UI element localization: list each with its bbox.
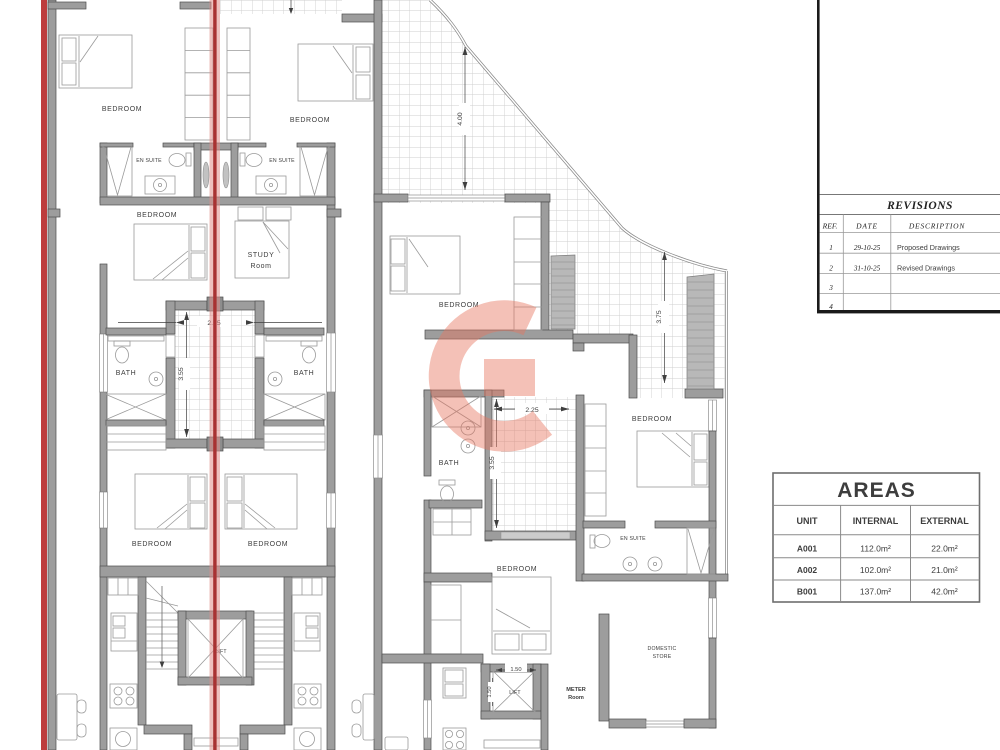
svg-text:42.0m²: 42.0m² [931,587,958,597]
svg-text:A001: A001 [797,544,818,554]
svg-text:BATH: BATH [116,370,137,377]
svg-text:Room: Room [250,263,271,270]
svg-text:BATH: BATH [439,460,460,467]
svg-text:DATE: DATE [855,222,878,231]
svg-text:137.0m²: 137.0m² [860,587,891,597]
svg-text:UNIT: UNIT [797,516,818,526]
svg-text:BEDROOM: BEDROOM [102,106,142,113]
svg-text:DESCRIPTION: DESCRIPTION [908,222,965,231]
svg-text:1.50: 1.50 [487,686,493,697]
svg-text:BEDROOM: BEDROOM [497,566,537,573]
svg-text:BEDROOM: BEDROOM [132,541,172,548]
svg-text:BEDROOM: BEDROOM [137,212,177,219]
svg-text:REF.: REF. [822,222,838,231]
svg-text:BEDROOM: BEDROOM [248,541,288,548]
svg-text:21.0m²: 21.0m² [931,565,958,575]
svg-text:B001: B001 [797,587,818,597]
svg-text:INTERNAL: INTERNAL [853,516,899,526]
svg-text:1: 1 [829,244,833,252]
svg-text:22.0m²: 22.0m² [931,544,958,554]
svg-text:EN SUITE: EN SUITE [136,158,162,164]
svg-text:STUDY: STUDY [248,252,275,259]
svg-text:102.0m²: 102.0m² [860,565,891,575]
svg-text:EN SUITE: EN SUITE [269,158,295,164]
svg-text:EN SUITE: EN SUITE [620,536,646,542]
svg-text:A002: A002 [797,565,818,575]
svg-text:3.75: 3.75 [656,310,663,323]
svg-text:METER: METER [566,687,586,693]
svg-text:REVISIONS: REVISIONS [886,200,953,212]
svg-text:4.00: 4.00 [457,112,464,125]
svg-text:2: 2 [829,265,833,273]
svg-text:BEDROOM: BEDROOM [290,117,330,124]
svg-text:AREAS: AREAS [837,479,916,502]
svg-text:31-10-25: 31-10-25 [853,265,881,273]
svg-text:112.0m²: 112.0m² [860,544,891,554]
svg-text:BEDROOM: BEDROOM [632,416,672,423]
svg-text:Proposed Drawings: Proposed Drawings [897,243,960,252]
svg-text:4: 4 [829,303,833,311]
svg-text:Revised Drawings: Revised Drawings [897,264,955,273]
svg-text:DOMESTIC: DOMESTIC [648,646,677,652]
svg-text:1.50: 1.50 [510,667,521,673]
svg-text:3.55: 3.55 [178,367,185,380]
svg-text:LIFT: LIFT [509,690,521,696]
svg-text:3: 3 [828,284,833,292]
svg-text:29-10-25: 29-10-25 [854,244,881,252]
svg-text:EXTERNAL: EXTERNAL [920,516,969,526]
svg-text:STORE: STORE [653,654,672,660]
svg-text:BATH: BATH [294,370,315,377]
svg-text:3.55: 3.55 [489,456,496,469]
svg-text:Room: Room [568,695,584,701]
